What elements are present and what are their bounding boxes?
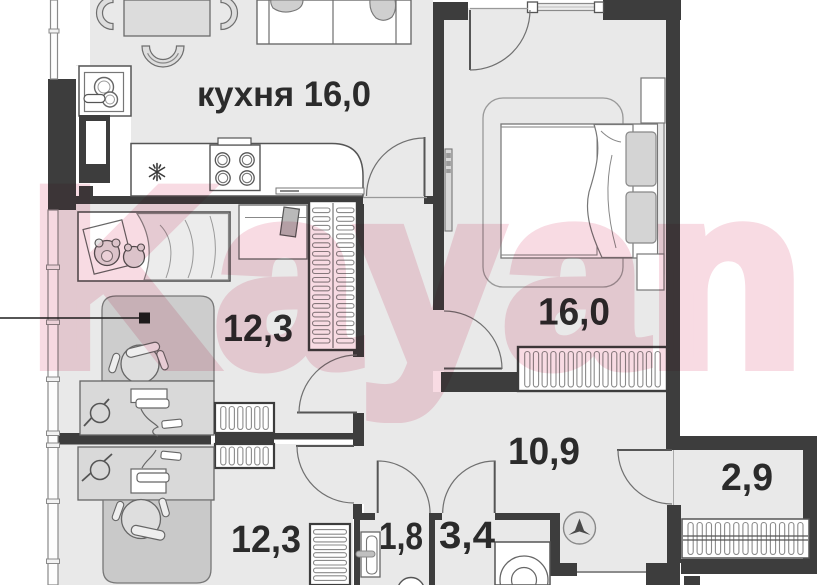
svg-text:10,9: 10,9 xyxy=(508,431,580,473)
svg-text:12,3: 12,3 xyxy=(231,519,301,561)
svg-text:1,8: 1,8 xyxy=(379,516,423,558)
svg-text:3,4: 3,4 xyxy=(439,515,495,557)
svg-text:кухня 16,0: кухня 16,0 xyxy=(197,75,371,114)
svg-text:2,9: 2,9 xyxy=(721,457,773,499)
